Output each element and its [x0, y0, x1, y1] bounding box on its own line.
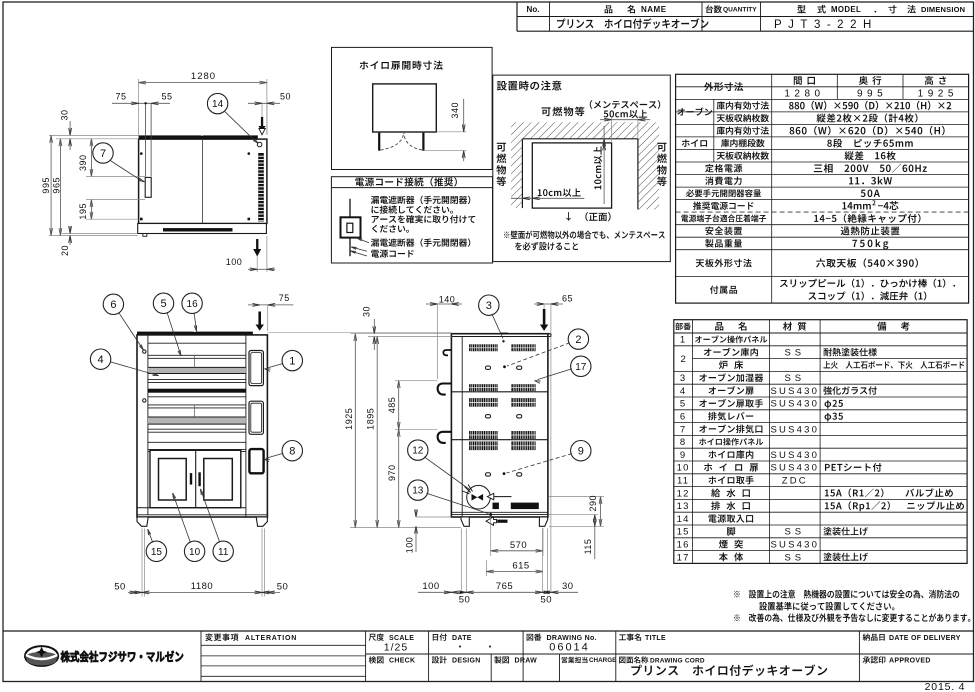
svg-text:SUS430: SUS430 [771, 463, 820, 474]
svg-text:17: 17 [575, 362, 587, 373]
svg-text:PJT3-22H: PJT3-22H [774, 19, 878, 31]
svg-text:50: 50 [277, 582, 289, 593]
svg-text:115: 115 [583, 539, 593, 555]
svg-text:11: 11 [218, 547, 229, 558]
svg-text:CHECK: CHECK [389, 658, 415, 665]
svg-text:9: 9 [578, 446, 584, 458]
svg-text:QUANTITY: QUANTITY [723, 7, 757, 14]
svg-text:NAME: NAME [641, 5, 667, 14]
svg-text:12: 12 [677, 488, 690, 499]
svg-text:3: 3 [486, 300, 492, 312]
svg-text:15: 15 [677, 527, 690, 538]
svg-text:9: 9 [680, 450, 686, 461]
svg-text:DIMENSION: DIMENSION [921, 5, 965, 14]
svg-text:55: 55 [161, 92, 172, 102]
svg-text:SS: SS [784, 348, 805, 359]
svg-text:14: 14 [677, 514, 690, 525]
svg-text:50: 50 [114, 582, 126, 593]
svg-text:13: 13 [677, 501, 690, 512]
svg-text:SUS430: SUS430 [771, 450, 820, 461]
svg-text:06014: 06014 [549, 642, 590, 654]
svg-text:1925: 1925 [344, 408, 354, 430]
svg-text:65: 65 [562, 293, 573, 303]
svg-text:16: 16 [187, 299, 199, 310]
svg-text:MODEL: MODEL [831, 5, 861, 14]
svg-text:2: 2 [680, 354, 685, 365]
svg-text:6: 6 [680, 412, 686, 423]
svg-text:1280: 1280 [784, 89, 824, 100]
svg-text:100: 100 [422, 581, 439, 592]
svg-text:5: 5 [680, 399, 686, 410]
svg-text:15: 15 [151, 547, 163, 558]
svg-text:6: 6 [110, 299, 116, 311]
svg-text:1: 1 [289, 356, 295, 368]
svg-text:340: 340 [450, 102, 460, 119]
svg-text:TITLE: TITLE [645, 635, 666, 642]
svg-text:SUS430: SUS430 [771, 424, 820, 435]
svg-text:16: 16 [677, 540, 690, 551]
svg-text:570: 570 [510, 540, 527, 551]
svg-text:30: 30 [60, 109, 70, 120]
svg-text:DATE OF DELIVERY: DATE OF DELIVERY [889, 635, 961, 642]
svg-text:50: 50 [280, 91, 291, 101]
svg-text:3: 3 [680, 373, 686, 384]
svg-text:11: 11 [677, 476, 689, 487]
svg-text:100: 100 [226, 257, 243, 267]
svg-text:7: 7 [100, 148, 106, 160]
svg-text:No.: No. [527, 5, 540, 14]
svg-text:1280: 1280 [191, 71, 216, 82]
svg-text:13: 13 [412, 486, 424, 497]
svg-text:12: 12 [412, 446, 424, 457]
svg-text:765: 765 [496, 581, 513, 592]
svg-text:290: 290 [588, 495, 598, 512]
svg-text:DESIGN: DESIGN [452, 658, 481, 665]
svg-text:SUS430: SUS430 [771, 399, 820, 410]
svg-text:1895: 1895 [366, 408, 376, 430]
svg-text:CHARGE: CHARGE [589, 657, 616, 664]
svg-text:SUS430: SUS430 [771, 540, 820, 551]
svg-text:20: 20 [60, 245, 70, 256]
svg-text:75: 75 [115, 91, 126, 101]
svg-text:50: 50 [541, 595, 553, 606]
svg-text:30: 30 [362, 306, 372, 317]
svg-text:995: 995 [857, 89, 887, 100]
svg-text:DRAWING CORD: DRAWING CORD [650, 657, 705, 664]
svg-text:1/25: 1/25 [384, 641, 408, 653]
svg-text:APPROVED: APPROVED [889, 658, 931, 665]
svg-text:14: 14 [212, 99, 224, 110]
svg-text:8: 8 [680, 437, 686, 448]
svg-text:195: 195 [78, 203, 88, 220]
svg-text:4: 4 [680, 386, 686, 397]
svg-text:SS: SS [784, 552, 805, 563]
svg-text:140: 140 [439, 295, 456, 305]
svg-text:10: 10 [677, 463, 690, 474]
svg-text:30: 30 [562, 581, 574, 592]
svg-text:615: 615 [512, 561, 529, 572]
svg-text:485: 485 [387, 397, 397, 414]
svg-text:390: 390 [78, 154, 88, 171]
svg-text:DATE: DATE [452, 635, 472, 642]
svg-text:7: 7 [680, 424, 686, 435]
svg-text:10: 10 [189, 547, 201, 558]
svg-text:2015. 4: 2015. 4 [925, 681, 966, 692]
svg-text:SS: SS [784, 527, 805, 538]
svg-text:995: 995 [41, 177, 51, 194]
svg-text:4: 4 [98, 354, 104, 366]
svg-text:DRAW: DRAW [515, 658, 538, 665]
svg-text:970: 970 [387, 464, 397, 481]
svg-text:SS: SS [784, 373, 805, 384]
svg-text:ZDC: ZDC [782, 476, 808, 487]
svg-text:8: 8 [289, 446, 295, 458]
svg-text:75: 75 [279, 293, 290, 303]
svg-text:ALTERATION: ALTERATION [245, 635, 297, 642]
svg-text:17: 17 [677, 552, 690, 563]
svg-text:100: 100 [404, 537, 414, 554]
svg-text:1925: 1925 [918, 89, 958, 100]
svg-text:50: 50 [459, 595, 471, 606]
svg-text:5: 5 [160, 298, 166, 310]
svg-text:2: 2 [575, 334, 581, 346]
svg-text:1180: 1180 [191, 581, 213, 592]
svg-text:965: 965 [51, 177, 61, 194]
svg-text:1: 1 [680, 335, 686, 346]
svg-text:SUS430: SUS430 [771, 386, 820, 397]
